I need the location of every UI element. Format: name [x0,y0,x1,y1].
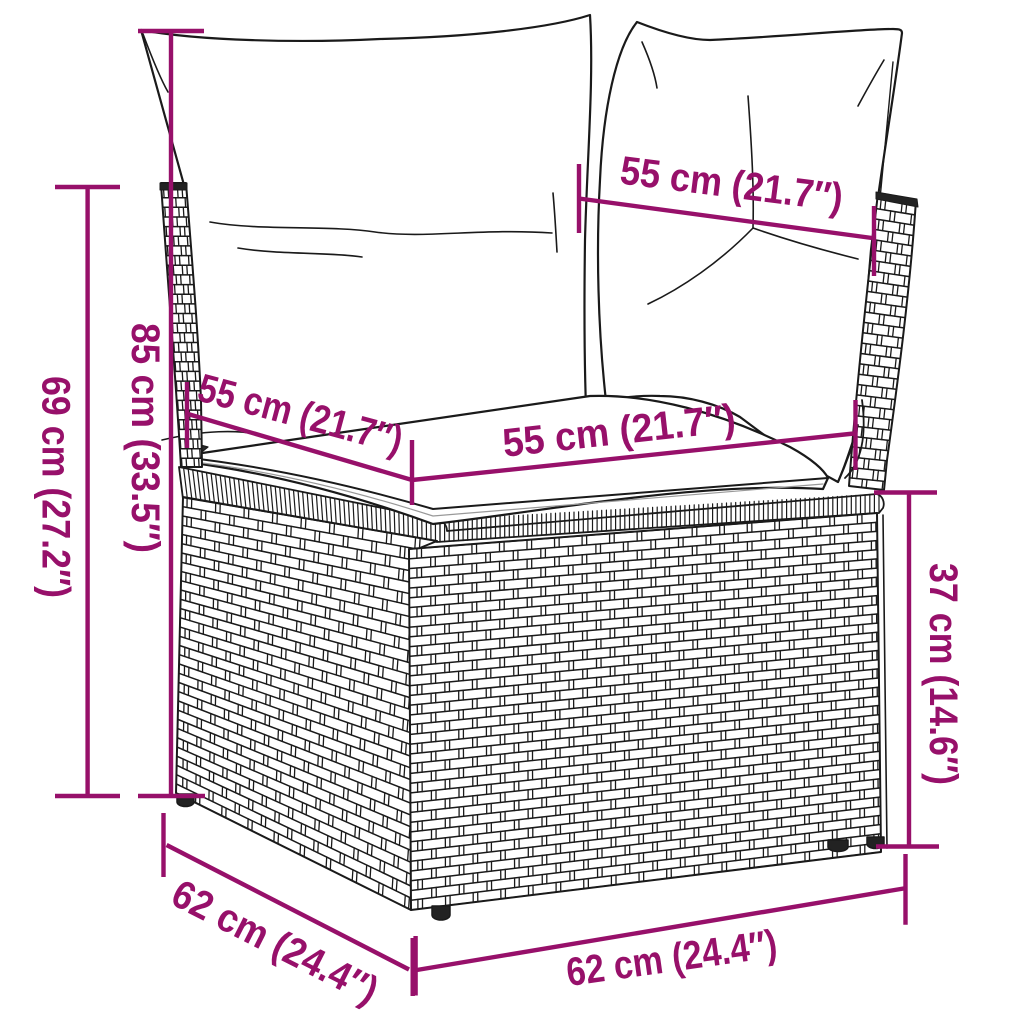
svg-text:69 cm (27.2″): 69 cm (27.2″) [34,376,78,598]
svg-text:85 cm (33.5″): 85 cm (33.5″) [123,323,167,553]
svg-text:37 cm (14.6″): 37 cm (14.6″) [921,563,965,785]
